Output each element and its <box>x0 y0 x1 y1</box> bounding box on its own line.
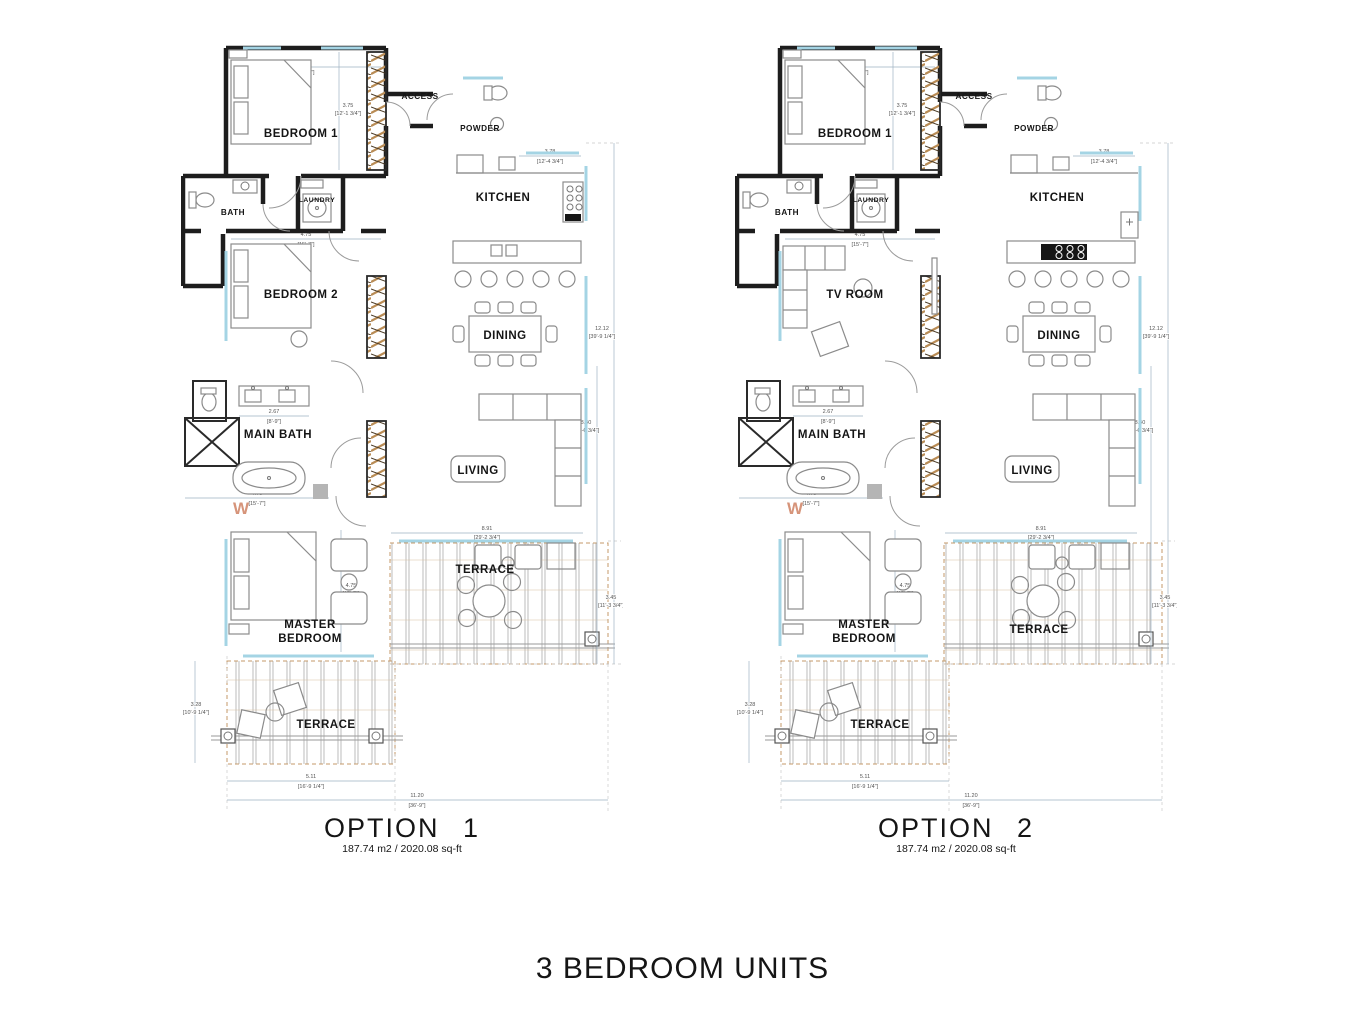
dim-overall-width-ft: [36'-9"] <box>408 803 426 809</box>
label-master-line2: BEDROOM <box>832 633 896 645</box>
dim-living-width-m: 8.91 <box>482 526 493 532</box>
label-master-line1: MASTER <box>838 619 890 631</box>
label-powder: POWDER <box>460 124 500 133</box>
label-laundry: LAUNDRY <box>299 197 335 204</box>
mainbath-fixtures <box>755 386 882 499</box>
dim-bedroom1-height-m: 3.75 <box>897 103 908 109</box>
label-powder: POWDER <box>1014 124 1054 133</box>
dim-mainbath-width-ft: [15'-7"] <box>248 501 266 507</box>
label-living: LIVING <box>1011 465 1052 477</box>
floorplan-sheet: 4.75 [15'-7"] 3.75 [12'-1 3/4"] 3.78 [12… <box>0 0 1365 1024</box>
dim-terrace-side-height-ft: [11'-3 3/4"] <box>598 603 623 609</box>
sheet-title: 3 BEDROOM UNITS <box>0 952 1365 986</box>
label-kitchen: KITCHEN <box>476 192 531 204</box>
dim-living-width-m: 8.91 <box>1036 526 1047 532</box>
living-sofa <box>1033 394 1135 506</box>
dim-bedroom1-height-ft: [12'-1 3/4"] <box>889 111 916 117</box>
floorplan-option-1: 4.75 [15'-7"] 3.75 [12'-1 3/4"] 3.78 [12… <box>181 36 623 855</box>
dim-bedroom1-height-m: 3.75 <box>343 103 354 109</box>
kitchen-counter <box>453 155 584 287</box>
dim-overall-width-m: 11.20 <box>410 793 423 799</box>
dim-mainbath-width-ft: [15'-7"] <box>802 501 820 507</box>
plan-area-text: 187.74 m2 / 2020.08 sq-ft <box>181 843 623 855</box>
floorplan-drawing: 4.75 [15'-7"] 3.75 [12'-1 3/4"] 3.78 [12… <box>735 36 1177 814</box>
label-main-bath: MAIN BATH <box>244 429 312 441</box>
closets <box>367 52 386 497</box>
floorplan-drawing: 4.75 [15'-7"] 3.75 [12'-1 3/4"] 3.78 [12… <box>181 36 623 814</box>
label-dining: DINING <box>1037 330 1080 342</box>
plan-area-text: 187.74 m2 / 2020.08 sq-ft <box>735 843 1177 855</box>
room2-sofa <box>783 246 937 356</box>
dim-terrace-bottom-height-ft: [10'-9 1/4"] <box>737 710 764 716</box>
label-terrace-bottom: TERRACE <box>296 719 355 731</box>
label-terrace-side: TERRACE <box>455 564 514 576</box>
dim-overall-width-m: 11.20 <box>964 793 977 799</box>
dim-terrace-bottom-width-m: 5.11 <box>306 774 316 780</box>
label-bath: BATH <box>775 208 799 217</box>
window-mark-w: W <box>233 499 250 518</box>
dim-bedroom1-height-ft: [12'-1 3/4"] <box>335 111 362 117</box>
dim-terrace-side-height-m: 3.45 <box>606 595 617 601</box>
dim-room2-width-ft: [15'-7"] <box>851 242 869 248</box>
dim-terrace-side-height-m: 3.45 <box>1160 595 1171 601</box>
label-room2: TV ROOM <box>826 289 883 301</box>
dim-overall-height-ft: [39'-9 1/4"] <box>589 334 616 340</box>
label-terrace-bottom: TERRACE <box>850 719 909 731</box>
dim-vanity-width-m: 2.67 <box>823 409 834 415</box>
window-mark-w: W <box>787 499 804 518</box>
label-main-bath: MAIN BATH <box>798 429 866 441</box>
bath-fixtures <box>743 180 811 208</box>
label-room2: BEDROOM 2 <box>264 289 338 301</box>
label-kitchen: KITCHEN <box>1030 192 1085 204</box>
dim-vanity-width-ft: [8'-9"] <box>821 419 835 425</box>
label-bedroom1: BEDROOM 1 <box>264 128 338 140</box>
door-swings <box>817 94 1007 526</box>
living-sofa <box>479 394 581 506</box>
label-master-line2: BEDROOM <box>278 633 342 645</box>
dim-terrace-bottom-height-m: 3.28 <box>745 702 756 708</box>
plan-title: OPTION 1 <box>181 814 623 842</box>
dim-kitchen-width-ft: [12'-4 3/4"] <box>537 159 564 165</box>
dim-terrace-bottom-width-ft: [16'-9 1/4"] <box>298 784 325 790</box>
label-living: LIVING <box>457 465 498 477</box>
plan-title: OPTION 2 <box>735 814 1177 842</box>
floorplan-option-2: 4.75 [15'-7"] 3.75 [12'-1 3/4"] 3.78 [12… <box>735 36 1177 855</box>
dim-terrace-bottom-height-m: 3.28 <box>191 702 202 708</box>
dim-vanity-width-ft: [8'-9"] <box>267 419 281 425</box>
label-bedroom1: BEDROOM 1 <box>818 128 892 140</box>
dim-overall-height-m: 12.12 <box>1149 326 1163 332</box>
label-access: ACCESS <box>955 92 992 101</box>
kitchen-island-stove <box>1041 212 1138 260</box>
dim-terrace-bottom-width-m: 5.11 <box>860 774 870 780</box>
kitchen-counter <box>1007 155 1138 287</box>
label-dining: DINING <box>483 330 526 342</box>
label-bath: BATH <box>221 208 245 217</box>
mainbath-fixtures <box>201 386 328 499</box>
dim-overall-height-m: 12.12 <box>595 326 609 332</box>
dim-terrace-bottom-height-ft: [10'-9 1/4"] <box>183 710 210 716</box>
dim-vanity-width-m: 2.67 <box>269 409 280 415</box>
label-terrace-side: TERRACE <box>1009 624 1068 636</box>
dim-overall-height-ft: [39'-9 1/4"] <box>1143 334 1170 340</box>
dim-terrace-bottom-width-ft: [16'-9 1/4"] <box>852 784 879 790</box>
dim-overall-width-ft: [36'-9"] <box>962 803 980 809</box>
bath-fixtures <box>189 180 257 208</box>
dim-terrace-side-height-ft: [11'-3 3/4"] <box>1152 603 1177 609</box>
label-laundry: LAUNDRY <box>853 197 889 204</box>
label-master-line1: MASTER <box>284 619 336 631</box>
dim-kitchen-width-ft: [12'-4 3/4"] <box>1091 159 1118 165</box>
label-access: ACCESS <box>401 92 438 101</box>
